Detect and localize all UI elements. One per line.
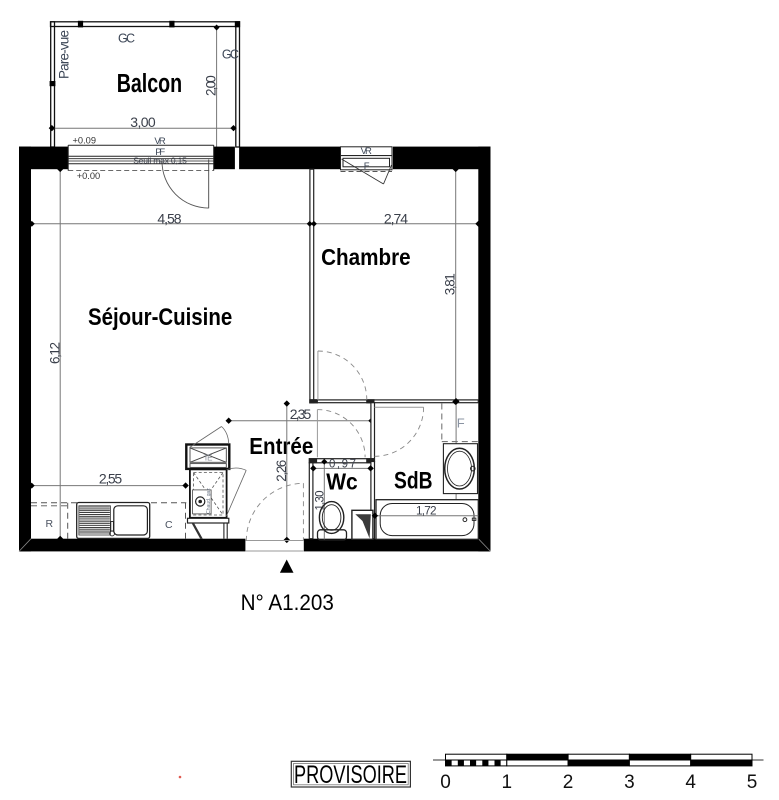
svg-text:Seuil max 0,15: Seuil max 0,15 [133, 155, 187, 165]
svg-text:GC: GC [222, 48, 239, 62]
svg-text:SdB: SdB [394, 468, 433, 495]
svg-text:4,58: 4,58 [157, 210, 181, 226]
svg-text:1: 1 [502, 772, 513, 793]
svg-text:2,26: 2,26 [274, 460, 289, 482]
svg-text:Pare-vue: Pare-vue [56, 30, 71, 79]
svg-text:F: F [364, 161, 370, 172]
svg-text:3: 3 [624, 772, 635, 793]
svg-text:6,12: 6,12 [47, 342, 62, 364]
svg-text:4: 4 [685, 772, 696, 793]
svg-text:R: R [46, 518, 54, 530]
svg-text:VR: VR [154, 136, 165, 147]
svg-text:2,74: 2,74 [384, 210, 408, 226]
svg-text:3,81: 3,81 [442, 273, 457, 295]
svg-text:0,97: 0,97 [329, 458, 356, 470]
svg-text:1,30: 1,30 [315, 491, 327, 511]
svg-text:2: 2 [563, 772, 574, 793]
svg-text:Chambre: Chambre [321, 244, 411, 270]
svg-text:Balcon: Balcon [117, 70, 183, 98]
svg-text:C: C [165, 519, 173, 531]
svg-text:GC: GC [118, 32, 135, 46]
svg-text:2,00: 2,00 [204, 75, 219, 96]
svg-text:Séjour-Cuisine: Séjour-Cuisine [88, 304, 232, 331]
svg-text:0: 0 [440, 772, 451, 793]
svg-text:Wc: Wc [326, 469, 358, 495]
svg-text:1,72: 1,72 [416, 504, 437, 518]
svg-text:3,00: 3,00 [130, 114, 156, 130]
svg-text:+0.09: +0.09 [73, 136, 97, 146]
svg-text:2,35: 2,35 [290, 406, 312, 422]
svg-text:2,55: 2,55 [99, 471, 123, 487]
svg-text:PROVISOIRE: PROVISOIRE [294, 761, 407, 789]
svg-text:Chaud. gaz: Chaud. gaz [206, 488, 212, 514]
svg-text:Entrée: Entrée [249, 433, 313, 459]
svg-text:5: 5 [747, 772, 758, 793]
svg-text:TE: TE [204, 453, 213, 462]
svg-text:N° A1.203: N° A1.203 [241, 590, 334, 615]
svg-text:+0.00: +0.00 [77, 171, 101, 181]
svg-text:F: F [457, 416, 465, 431]
